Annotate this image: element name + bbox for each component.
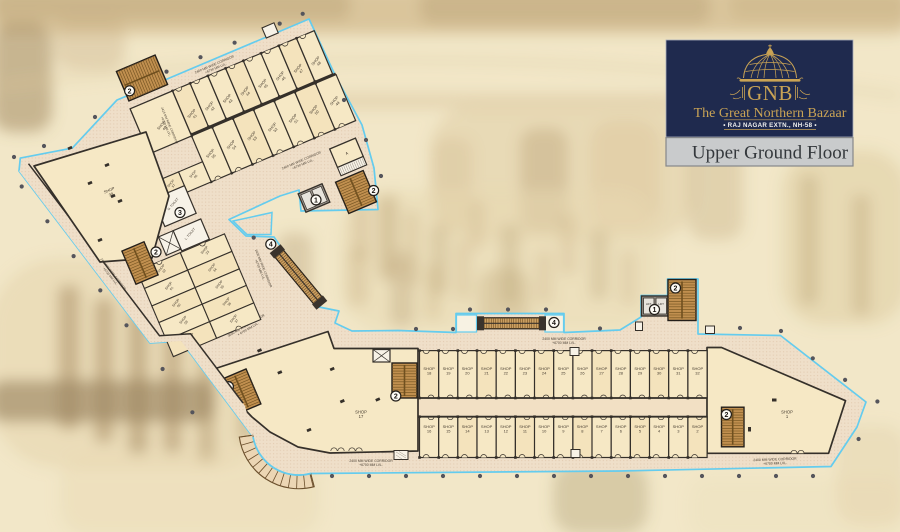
svg-text:19: 19: [446, 371, 451, 376]
svg-text:22: 22: [504, 371, 509, 376]
svg-text:32: 32: [695, 371, 700, 376]
svg-text:14: 14: [465, 429, 470, 434]
svg-text:31: 31: [676, 371, 681, 376]
svg-text:28: 28: [619, 371, 624, 376]
svg-text:2: 2: [724, 412, 728, 419]
svg-text:15: 15: [446, 429, 451, 434]
svg-text:+6700 MM LVL.: +6700 MM LVL.: [763, 461, 787, 466]
svg-text:21: 21: [484, 371, 489, 376]
svg-text:4: 4: [552, 320, 556, 327]
svg-text:10: 10: [542, 429, 547, 434]
svg-text:1: 1: [314, 197, 318, 204]
svg-text:1: 1: [653, 307, 657, 314]
svg-text:3: 3: [178, 210, 182, 217]
svg-text:The Great Northern Bazaar: The Great Northern Bazaar: [694, 106, 847, 121]
svg-text:23: 23: [523, 371, 528, 376]
svg-text:Upper Ground Floor: Upper Ground Floor: [692, 143, 849, 164]
svg-text:2: 2: [394, 394, 398, 401]
svg-text:25: 25: [561, 371, 566, 376]
svg-text:26: 26: [580, 371, 585, 376]
svg-text:18: 18: [427, 371, 432, 376]
svg-text:13: 13: [484, 429, 489, 434]
svg-text:17: 17: [359, 414, 364, 419]
svg-text:2: 2: [128, 88, 132, 95]
svg-text:20: 20: [465, 371, 470, 376]
svg-text:• RAJ NAGAR EXTN., NH-58 •: • RAJ NAGAR EXTN., NH-58 •: [723, 122, 817, 129]
svg-text:24: 24: [542, 371, 547, 376]
svg-text:29: 29: [638, 371, 643, 376]
svg-text:2: 2: [372, 188, 376, 195]
svg-text:2: 2: [154, 250, 158, 257]
svg-text:GNB: GNB: [747, 81, 793, 105]
svg-text:27: 27: [599, 371, 604, 376]
svg-text:12: 12: [504, 429, 509, 434]
svg-text:LIFT: LIFT: [659, 302, 665, 306]
svg-text:+6700 MM LVL.: +6700 MM LVL.: [552, 341, 576, 345]
svg-text:30: 30: [657, 371, 662, 376]
svg-text:4: 4: [269, 242, 273, 249]
svg-text:16: 16: [427, 429, 432, 434]
svg-text:2: 2: [674, 286, 678, 293]
svg-text:+6700 MM LVL.: +6700 MM LVL.: [359, 463, 383, 467]
